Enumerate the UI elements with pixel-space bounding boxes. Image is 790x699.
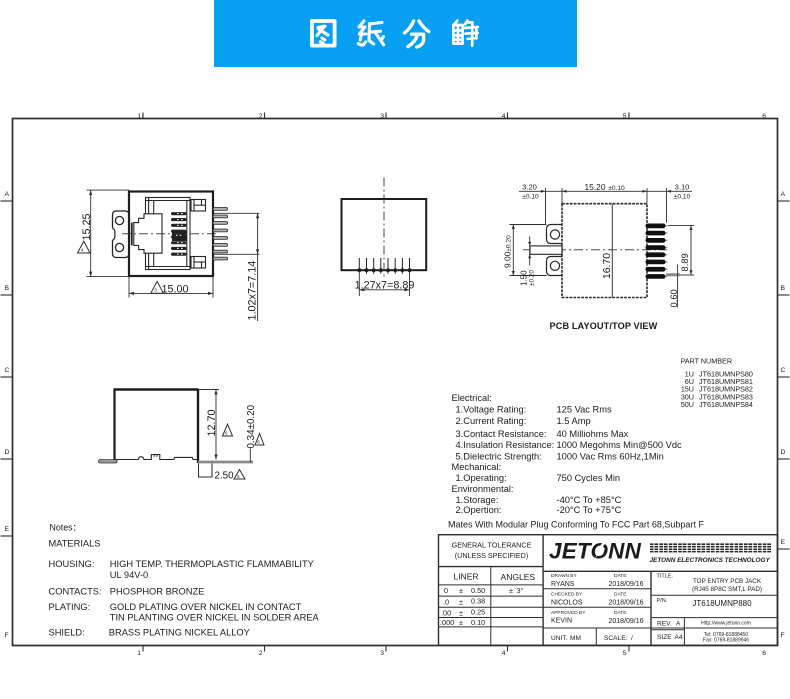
svg-text:PCB LAYOUT/TOP VIEW: PCB LAYOUT/TOP VIEW — [550, 321, 658, 331]
svg-text:15.25: 15.25 — [81, 213, 93, 240]
svg-text:6: 6 — [257, 440, 260, 445]
svg-text:3: 3 — [380, 113, 384, 120]
svg-text:125 Vac Rms: 125 Vac Rms — [557, 404, 612, 414]
svg-text:SIZE: SIZE — [657, 634, 672, 641]
svg-text:D: D — [781, 449, 786, 456]
svg-text:4: 4 — [81, 248, 84, 253]
svg-text:8.89: 8.89 — [679, 253, 690, 271]
svg-text:BRASS PLATING NICKEL ALLOY: BRASS PLATING NICKEL ALLOY — [109, 628, 250, 638]
svg-text:±: ± — [459, 586, 463, 595]
svg-text:-40°C To +85°C: -40°C To +85°C — [557, 495, 622, 505]
svg-text:5: 5 — [623, 650, 627, 657]
svg-text:E: E — [5, 526, 10, 533]
svg-text:6: 6 — [225, 431, 228, 436]
svg-text:4: 4 — [502, 113, 506, 120]
svg-text:F: F — [5, 632, 9, 639]
svg-text:TITLE.: TITLE. — [657, 574, 674, 580]
svg-text:GENERAL TOLERANCE: GENERAL TOLERANCE — [452, 541, 532, 550]
svg-text:3.Contact Resistance:: 3.Contact Resistance: — [456, 429, 547, 439]
svg-text:1.Storage:: 1.Storage: — [456, 495, 499, 505]
svg-text:DATE: DATE — [614, 573, 626, 579]
svg-text:1.Voltage Rating:: 1.Voltage Rating: — [456, 404, 527, 414]
svg-text:1.27x7=8.89: 1.27x7=8.89 — [355, 280, 415, 292]
svg-text:KEVIN: KEVIN — [551, 617, 572, 624]
svg-text:PART NUMBER: PART NUMBER — [681, 357, 733, 366]
svg-text:Environmental:: Environmental: — [452, 484, 514, 494]
svg-text:Fax: 0769-81889946: Fax: 0769-81889946 — [703, 637, 749, 643]
svg-text:3: 3 — [380, 650, 384, 657]
svg-text:ANGLES: ANGLES — [501, 572, 536, 582]
svg-text:F: F — [781, 632, 785, 639]
svg-text:50U: 50U — [681, 400, 694, 409]
svg-text:1.Operating:: 1.Operating: — [456, 473, 507, 483]
svg-text:.000: .000 — [440, 618, 454, 627]
svg-text:1000 Megohms Min@500 Vdc: 1000 Megohms Min@500 Vdc — [557, 440, 683, 450]
svg-text:16.70: 16.70 — [602, 253, 613, 279]
svg-text:A: A — [5, 191, 10, 198]
svg-text:±0.10: ±0.10 — [522, 193, 539, 200]
svg-text:1: 1 — [137, 650, 141, 657]
svg-text:Notes：: Notes： — [50, 523, 82, 533]
svg-text:0.50: 0.50 — [471, 586, 485, 595]
svg-text:A: A — [781, 191, 786, 198]
svg-text:±: ± — [509, 586, 513, 595]
svg-text:1.5 Amp: 1.5 Amp — [557, 416, 591, 426]
svg-text:C: C — [5, 367, 10, 374]
svg-text:0.34±0.20: 0.34±0.20 — [246, 404, 257, 448]
svg-text:PHOSPHOR BRONZE: PHOSPHOR BRONZE — [110, 587, 205, 597]
svg-text:CHECKED BY: CHECKED BY — [551, 592, 583, 598]
svg-text:SCALE:: SCALE: — [604, 635, 628, 642]
svg-text:B: B — [5, 285, 10, 292]
svg-text:4.Insulation Resistance:: 4.Insulation Resistance: — [456, 440, 555, 450]
svg-text:±0.20: ±0.20 — [529, 270, 536, 286]
svg-text:0.10: 0.10 — [471, 618, 485, 627]
svg-text:Electrical:: Electrical: — [452, 393, 492, 403]
svg-text:C: C — [781, 367, 786, 374]
svg-text:0: 0 — [444, 586, 448, 595]
svg-text:3.10: 3.10 — [675, 183, 690, 192]
svg-text:4: 4 — [502, 650, 506, 657]
svg-text:A4: A4 — [675, 634, 683, 641]
svg-text:(UNLESS SPECIFIED): (UNLESS SPECIFIED) — [455, 551, 529, 560]
svg-text:E: E — [781, 539, 786, 546]
svg-text:P/N.: P/N. — [657, 598, 668, 604]
svg-text:2.50: 2.50 — [215, 471, 235, 482]
svg-text:JT618UMNP880: JT618UMNP880 — [692, 599, 752, 608]
svg-text:LINER: LINER — [453, 572, 478, 582]
svg-text:B: B — [781, 285, 786, 292]
svg-text:2018/09/16: 2018/09/16 — [609, 618, 644, 625]
svg-text:1.50: 1.50 — [520, 270, 529, 286]
svg-text:5: 5 — [623, 113, 627, 120]
svg-text:JETONN ELECTRONICS TECHNOLOGY: JETONN ELECTRONICS TECHNOLOGY — [650, 557, 771, 564]
svg-text:D: D — [5, 449, 10, 456]
svg-text:.0: .0 — [443, 597, 449, 606]
svg-text:JETONN: JETONN — [549, 539, 642, 564]
svg-text:APPROVED BY: APPROVED BY — [551, 610, 586, 616]
svg-text:A: A — [676, 620, 681, 627]
svg-text:2.Opertion:: 2.Opertion: — [456, 505, 502, 515]
svg-text:12.70: 12.70 — [206, 409, 218, 436]
svg-text:UL 94V-0: UL 94V-0 — [110, 570, 148, 580]
svg-text:-20°C To +75°C: -20°C To +75°C — [557, 505, 622, 515]
svg-text:HOUSING:: HOUSING: — [49, 559, 95, 569]
svg-text:2: 2 — [259, 113, 263, 120]
svg-text:±: ± — [459, 608, 463, 617]
svg-text:HIGH TEMP. THERMOPLASTIC FLAMM: HIGH TEMP. THERMOPLASTIC FLAMMABILITY — [110, 559, 314, 569]
svg-text:3°: 3° — [517, 586, 524, 595]
svg-text:2018/09/16: 2018/09/16 — [609, 599, 644, 606]
svg-text:1: 1 — [137, 113, 141, 120]
svg-text:GOLD PLATING OVER NICKEL IN CO: GOLD PLATING OVER NICKEL IN CONTACT — [110, 602, 302, 612]
svg-text:±0.10: ±0.10 — [674, 193, 691, 200]
svg-text:MATERIALS: MATERIALS — [49, 539, 101, 549]
svg-text:DATE: DATE — [614, 592, 626, 598]
svg-text:MM: MM — [570, 635, 581, 642]
svg-text:6: 6 — [762, 650, 766, 657]
svg-text:5.Dielectric Strength:: 5.Dielectric Strength: — [456, 451, 542, 461]
svg-text:2: 2 — [259, 650, 263, 657]
svg-text:JT618UMNPS84: JT618UMNPS84 — [699, 400, 753, 409]
svg-text:3.20: 3.20 — [522, 183, 537, 192]
svg-text:Http://www.jetonn.com: Http://www.jetonn.com — [701, 621, 751, 627]
svg-text:SHIELD:: SHIELD: — [49, 628, 85, 638]
svg-text:TIN PLANTING OVER NICKEL IN SO: TIN PLANTING OVER NICKEL IN SOLDER AREA — [110, 613, 320, 623]
svg-text:UNIT.: UNIT. — [551, 635, 568, 642]
svg-text:DATE: DATE — [614, 610, 626, 616]
svg-text:0.60: 0.60 — [668, 289, 679, 307]
svg-text:TOP ENTRY PCB JACK: TOP ENTRY PCB JACK — [693, 578, 762, 585]
svg-text:Mates With Modular Plug Confor: Mates With Modular Plug Conforming To FC… — [448, 519, 704, 529]
svg-text:RYANS: RYANS — [551, 581, 575, 588]
svg-text:5: 5 — [237, 474, 240, 479]
svg-text:PLATING:: PLATING: — [49, 602, 91, 612]
svg-text:1000 Vac Rms 60Hz,1Min: 1000 Vac Rms 60Hz,1Min — [557, 451, 664, 461]
svg-text:15.00: 15.00 — [162, 284, 189, 296]
svg-text:/: / — [631, 635, 633, 642]
svg-text:CONTACTS:: CONTACTS: — [49, 587, 102, 597]
svg-text:0.38: 0.38 — [471, 596, 485, 605]
svg-text:DRAWN BY: DRAWN BY — [551, 573, 577, 579]
svg-text:±: ± — [459, 618, 463, 627]
svg-text:NICOLOS: NICOLOS — [551, 599, 583, 606]
svg-text:6: 6 — [762, 113, 766, 120]
svg-text:40 Milliohms Max: 40 Milliohms Max — [557, 429, 629, 439]
svg-text:0.25: 0.25 — [471, 607, 485, 616]
svg-text:(RJ45 8P8C SMT,L PAD): (RJ45 8P8C SMT,L PAD) — [692, 586, 762, 593]
svg-text:15.20: 15.20 — [585, 182, 606, 192]
svg-text:3: 3 — [154, 288, 157, 293]
svg-text:1.02x7=7.14: 1.02x7=7.14 — [247, 261, 259, 321]
svg-text:±0.10: ±0.10 — [608, 185, 625, 192]
svg-text:2018/09/16: 2018/09/16 — [609, 581, 644, 588]
svg-text:Mechanical:: Mechanical: — [452, 462, 502, 472]
svg-text:±: ± — [459, 597, 463, 606]
svg-text:750 Cycles Min: 750 Cycles Min — [557, 473, 621, 483]
svg-text:2.Current Rating:: 2.Current Rating: — [456, 416, 527, 426]
svg-text:REV.: REV. — [657, 620, 672, 627]
svg-text:.00: .00 — [441, 608, 451, 617]
